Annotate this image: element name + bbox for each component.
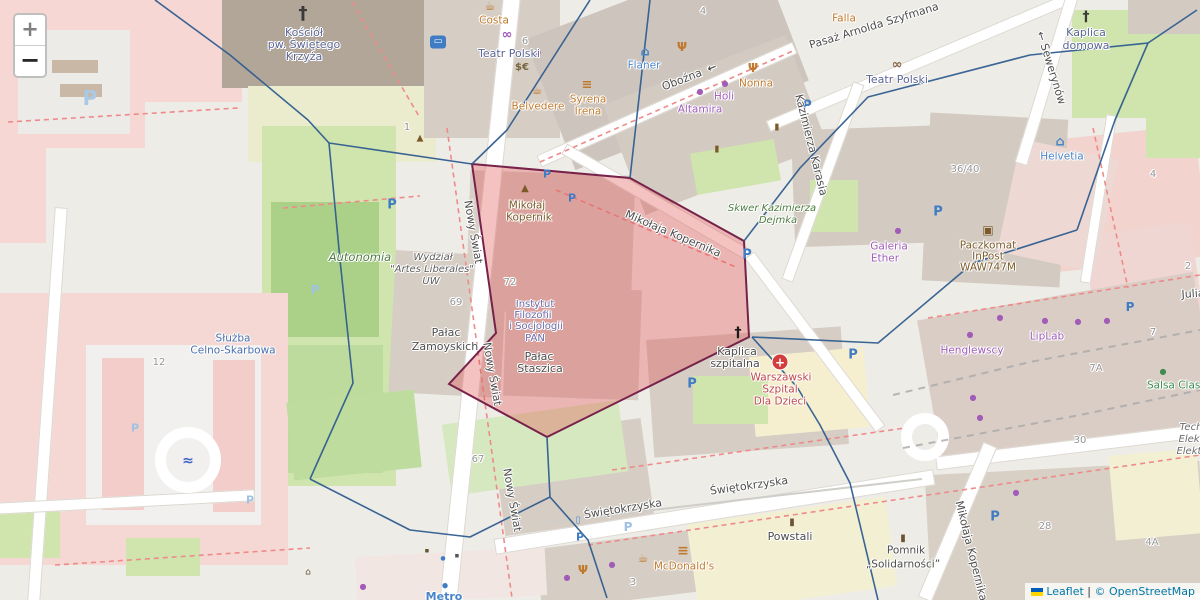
poi-palac-staszica: Staszica bbox=[517, 363, 562, 375]
leaflet-link[interactable]: Leaflet bbox=[1046, 585, 1083, 598]
shop-icon: ● bbox=[977, 414, 984, 422]
parking-icon: P bbox=[543, 169, 551, 180]
poi-kosciol: Kościół bbox=[285, 27, 323, 39]
shop-icon: ● bbox=[895, 227, 902, 235]
housenumber: 12 bbox=[153, 358, 166, 369]
zoom-control: + − bbox=[13, 13, 47, 78]
poi-liplab: LipLab bbox=[1030, 331, 1064, 342]
taxi-icon: ▭ bbox=[430, 36, 446, 49]
parking-icon-faded: P bbox=[131, 423, 139, 434]
metro-entrance-icon: ▯ bbox=[576, 517, 581, 526]
area-autonomia: Autonomia bbox=[329, 251, 391, 263]
theatre-masks-icon: ∞ bbox=[502, 29, 513, 42]
poi-instytut: Filozofii bbox=[514, 311, 551, 322]
poi-kaplica-szpitalna: Kaplica bbox=[717, 346, 757, 358]
area-skwer-dejmka: Dejmka bbox=[759, 216, 797, 227]
zoom-in-button[interactable]: + bbox=[15, 15, 45, 45]
theatre-masks-icon-2: ∞ bbox=[892, 59, 903, 72]
poi-palac-zamoyskich: Zamoyskich bbox=[412, 341, 478, 353]
poi-wydzial: Wydział bbox=[413, 253, 452, 264]
parking-icon: P bbox=[387, 199, 397, 212]
poi-wydzial: "Artes Liberales" bbox=[390, 265, 474, 276]
map-canvas[interactable]: †††+▭☕☕☕≡≡ΨΨΨ⌂⌂∞∞▲▲▮▮▮▮⌂≈▣$€PPPPPPPPPPPP… bbox=[0, 0, 1200, 600]
shop-icon: ● bbox=[697, 88, 704, 96]
poi-szpital: Warszawski bbox=[751, 372, 812, 383]
poi-szpital: Dla Dzieci bbox=[754, 396, 806, 407]
poi-pomnik-solidarnosci: „Solidarności” bbox=[866, 559, 940, 570]
obelisk-icon-2: ▮ bbox=[775, 124, 780, 133]
bicycle-parking-icon: P bbox=[576, 532, 584, 543]
roundabout-ring bbox=[901, 413, 949, 461]
poi-mikolaj-kopernik: Mikołaj bbox=[509, 200, 545, 211]
housenumber: 30 bbox=[1074, 436, 1087, 447]
poi-teatr-polski: Teatr Polski bbox=[866, 74, 928, 86]
parking-icon: P bbox=[742, 249, 752, 262]
poi-paczkomat: WAW747M bbox=[960, 262, 1016, 273]
poi-tech: Tech bbox=[1180, 423, 1200, 434]
cafe-icon-costa: ☕ bbox=[485, 0, 496, 12]
parking-icon: P bbox=[848, 349, 858, 362]
poi-kaplica-domowa: Kaplica bbox=[1066, 27, 1106, 39]
poi-kosciol: Krzyża bbox=[286, 51, 323, 63]
map-area bbox=[1146, 82, 1200, 158]
shop-icon: ● bbox=[1075, 318, 1082, 326]
map-area bbox=[1108, 448, 1200, 540]
shop-icon: ● bbox=[967, 331, 974, 339]
shop-icon: ● bbox=[564, 574, 571, 582]
fastfood-icon-syrena: ≡ bbox=[582, 79, 593, 92]
hospital-chapel-cross-icon: † bbox=[735, 326, 742, 340]
shop-icon: ● bbox=[722, 80, 729, 88]
poi-holi: Holi bbox=[714, 91, 734, 102]
parcel-locker-icon: ▣ bbox=[982, 224, 993, 236]
traffic-signal-icon: ▪ bbox=[455, 553, 460, 560]
restaurant-icon-obozna: Ψ bbox=[677, 41, 687, 53]
poi-palac-zamoyskich: Pałac bbox=[432, 327, 461, 339]
poi-tech: Elektr bbox=[1176, 447, 1200, 458]
road bbox=[766, 0, 1074, 132]
parking-icon-faded: P bbox=[624, 521, 633, 533]
memorial-icon-sw: ⌂ bbox=[305, 569, 311, 578]
housenumber: 4A bbox=[1145, 538, 1158, 549]
poi-tech: Elekt bbox=[1179, 435, 1200, 446]
shop-icon: ● bbox=[1104, 317, 1111, 325]
dance-icon-salsa: ● bbox=[1160, 368, 1167, 376]
shop-icon: ● bbox=[970, 394, 977, 402]
chapel-cross-icon: † bbox=[1083, 10, 1090, 24]
street-pasaz-szyfmana: Pasaż Arnolda Szyfmana bbox=[808, 1, 940, 51]
area-skwer-dejmka: Skwer Kazimierza bbox=[728, 204, 816, 215]
poi-galeria-ether: Ether bbox=[871, 253, 899, 264]
map-area bbox=[52, 60, 98, 73]
housenumber: 72 bbox=[504, 278, 517, 289]
poi-kosciol: pw. Świętego bbox=[268, 39, 341, 51]
hospital-icon: + bbox=[772, 354, 789, 371]
restaurant-icon-nonna: Ψ bbox=[748, 62, 758, 74]
map-area bbox=[286, 390, 421, 481]
poi-henglewscy: Henglewscy bbox=[940, 345, 1003, 356]
restaurant-icon-swietokrzyska: Ψ bbox=[578, 564, 588, 576]
poi-falla: Falla bbox=[832, 13, 856, 24]
poi-belvedere: Belvedere bbox=[512, 101, 565, 112]
poi-costa: Costa bbox=[479, 15, 509, 26]
fountain-icon: ≈ bbox=[182, 454, 194, 468]
housenumber: 4 bbox=[700, 7, 706, 18]
housenumber: 7 bbox=[1150, 328, 1156, 339]
bicycle-parking-icon: P bbox=[1126, 301, 1135, 313]
parking-icon: P bbox=[990, 511, 1000, 524]
parking-icon-faded: P bbox=[311, 284, 320, 296]
poi-sluzba: Celno-Skarbowa bbox=[190, 345, 275, 356]
monument-icon-1: ▲ bbox=[417, 135, 424, 144]
map-area bbox=[0, 148, 46, 243]
obelisk-icon-1: ▮ bbox=[715, 146, 720, 155]
poi-syrena: Irena bbox=[575, 106, 602, 117]
metro-label: Metro bbox=[426, 591, 463, 600]
housenumber: 2 bbox=[1185, 262, 1191, 273]
housenumber: 67 bbox=[472, 455, 485, 466]
church-cross-icon: † bbox=[299, 5, 308, 23]
shop-icon: ● bbox=[609, 561, 616, 569]
poi-galeria-ether: Galeria bbox=[870, 241, 908, 252]
poi-nonna: Nonna bbox=[739, 78, 773, 89]
poi-mikolaj-kopernik: Kopernik bbox=[506, 212, 552, 223]
poi-flaner: Flaner bbox=[628, 60, 661, 71]
cafe-icon-belvedere: ☕ bbox=[532, 84, 543, 96]
poi-palac-staszica: Pałac bbox=[525, 351, 554, 363]
poi-altamira: Altamira bbox=[678, 104, 723, 115]
poi-instytut: i Socjologii bbox=[509, 322, 563, 333]
housenumber: 36/40 bbox=[951, 165, 980, 176]
attribution-separator: | bbox=[1084, 585, 1095, 598]
map-area bbox=[1128, 0, 1200, 34]
poi-wydzial: UW bbox=[422, 277, 439, 288]
memorial-icon-solidarnosci: ▮ bbox=[900, 534, 906, 544]
poi-instytut: PAN bbox=[525, 334, 545, 345]
shop-icon: ● bbox=[360, 583, 367, 591]
shop-icon: ● bbox=[1013, 489, 1020, 497]
attribution-bar: Leaflet | © OpenStreetMap bbox=[1025, 583, 1200, 600]
parking-icon: P bbox=[933, 206, 943, 219]
cafe-icon-swietokrzyska: ☕ bbox=[638, 552, 649, 564]
housenumber: 4 bbox=[1150, 170, 1156, 181]
poi-kaplica-domowa: domowa bbox=[1063, 40, 1110, 52]
parking-icon: P bbox=[687, 378, 697, 391]
crossing-icon: ▪ bbox=[425, 548, 430, 555]
poi-powstali: Powstali bbox=[768, 531, 813, 543]
memorial-icon-powstali: ▮ bbox=[789, 518, 795, 528]
housenumber: 28 bbox=[1039, 522, 1052, 533]
poi-szpital: Szpital bbox=[762, 384, 797, 395]
hotel-icon-helvetia: ⌂ bbox=[1055, 136, 1064, 149]
ukraine-flag-icon bbox=[1031, 588, 1043, 596]
poi-teatr-polski: Teatr Polski bbox=[478, 48, 540, 60]
shop-icon: ● bbox=[997, 314, 1004, 322]
poi-dot-blue: ● bbox=[440, 556, 445, 562]
poi-instytut: Instytut bbox=[516, 300, 555, 311]
fastfood-icon-mcdonalds: ≡ bbox=[677, 544, 689, 558]
poi-mcdonalds: McDonald's bbox=[654, 561, 714, 572]
openstreetmap-link[interactable]: © OpenStreetMap bbox=[1094, 585, 1195, 598]
parking-icon-faded: P bbox=[83, 88, 98, 108]
poi-salsa: Salsa Clasic bbox=[1147, 380, 1200, 391]
poi-sluzba: Służba bbox=[216, 333, 251, 344]
housenumber: 1 bbox=[404, 123, 410, 134]
poi-helvetia: Helvetia bbox=[1040, 151, 1083, 162]
shop-icon: ● bbox=[1042, 317, 1049, 325]
monument-icon-kopernik: ▲ bbox=[521, 184, 529, 194]
poi-pomnik-solidarnosci: Pomnik bbox=[887, 545, 925, 556]
parking-icon: P bbox=[568, 193, 576, 204]
housenumber: 7A bbox=[1089, 364, 1102, 375]
currency-exchange-icon: $€ bbox=[515, 63, 529, 73]
housenumber: 6 bbox=[522, 37, 528, 48]
zoom-out-button[interactable]: − bbox=[15, 45, 45, 76]
street-julia: Julia bbox=[1181, 287, 1200, 300]
hostel-icon-flaner: ⌂ bbox=[640, 46, 649, 59]
housenumber: 69 bbox=[450, 298, 463, 309]
poi-syrena: Syrena bbox=[570, 94, 607, 105]
map-area bbox=[126, 538, 200, 576]
housenumber: 3 bbox=[630, 578, 636, 589]
bicycle-rental-icon: ● bbox=[442, 583, 448, 590]
poi-kaplica-szpitalna: szpitalna bbox=[710, 358, 759, 370]
parking-icon-faded: P bbox=[246, 495, 254, 506]
